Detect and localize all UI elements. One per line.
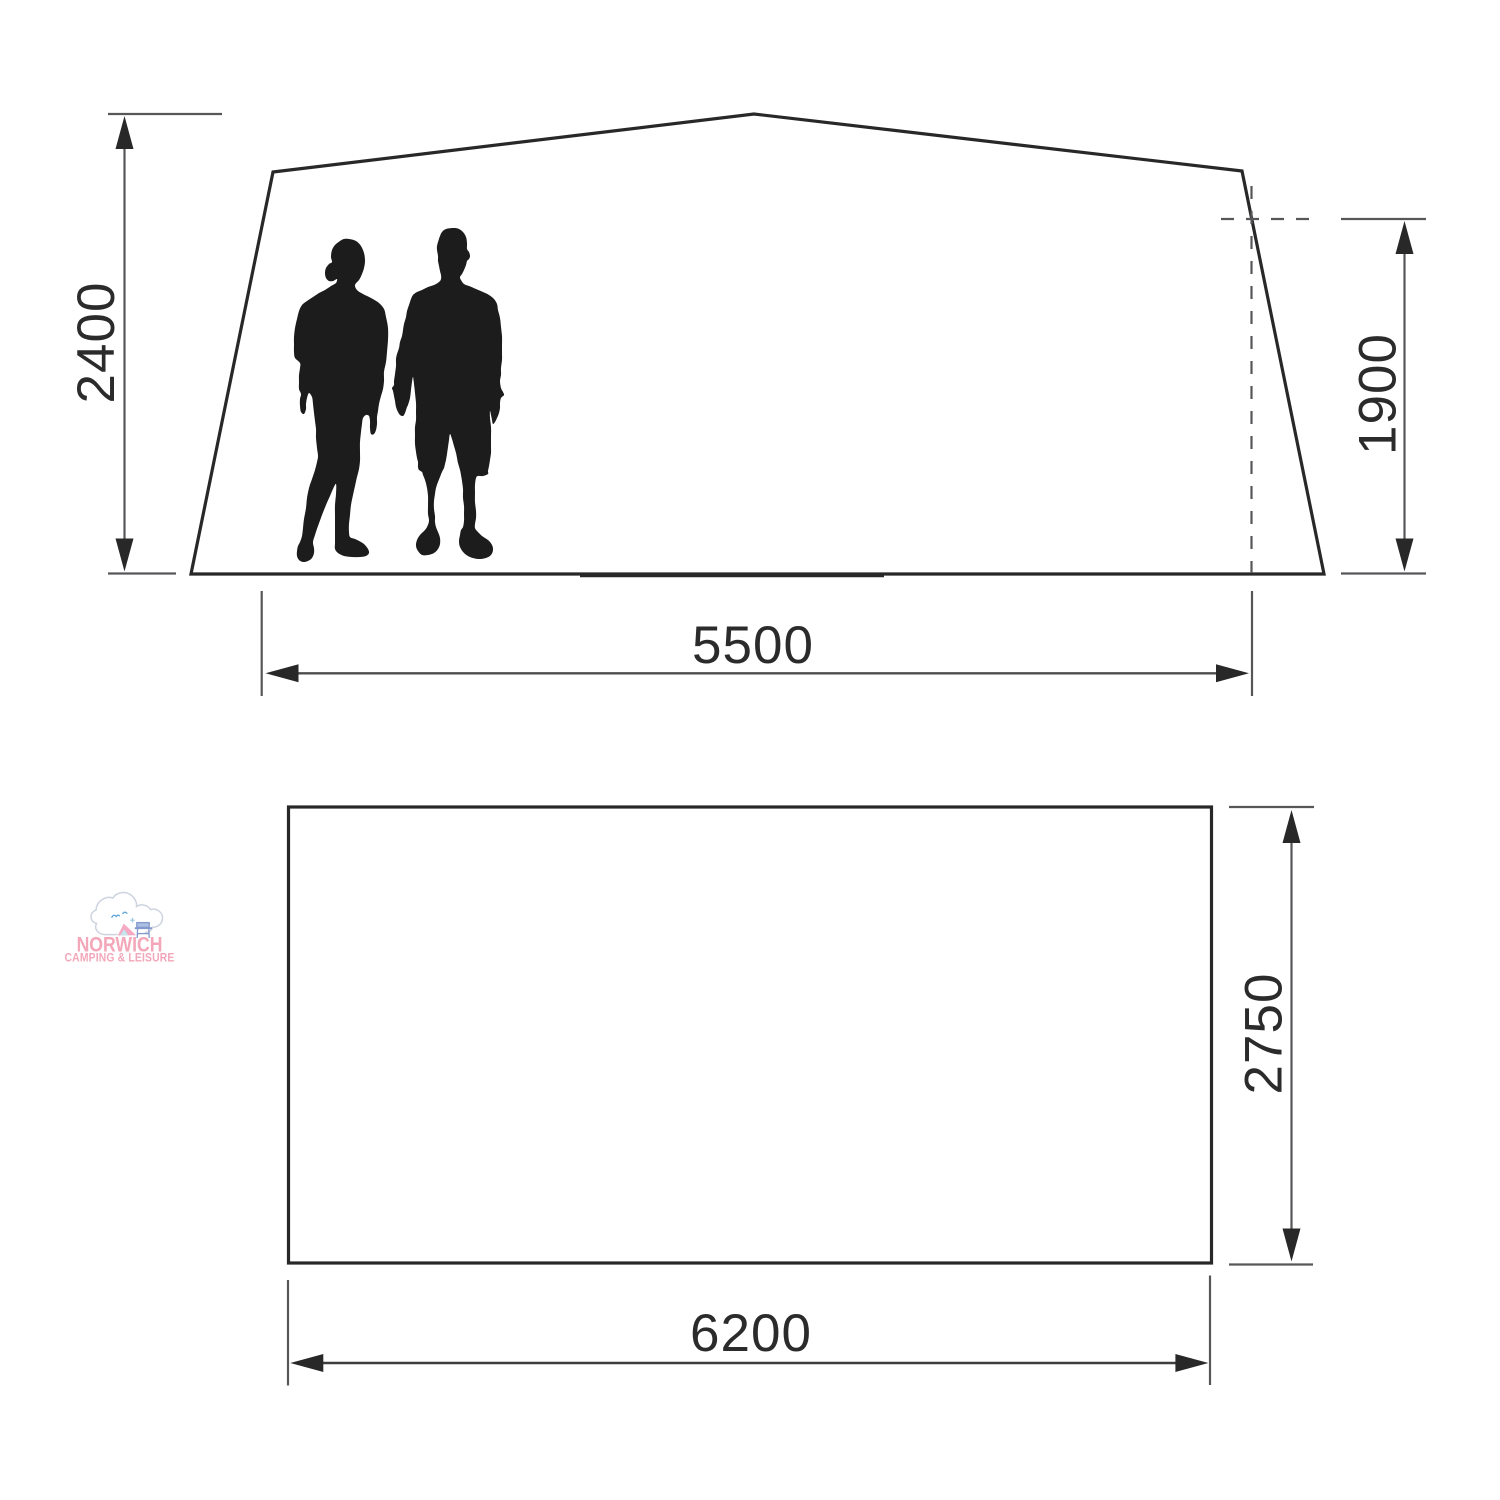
svg-text:6200: 6200 [690,1304,812,1363]
svg-text:1900: 1900 [1349,333,1408,455]
svg-text:2400: 2400 [67,282,126,404]
svg-text:CAMPING & LEISURE: CAMPING & LEISURE [65,952,175,965]
svg-text:5500: 5500 [692,616,814,675]
svg-text:2750: 2750 [1235,973,1294,1095]
